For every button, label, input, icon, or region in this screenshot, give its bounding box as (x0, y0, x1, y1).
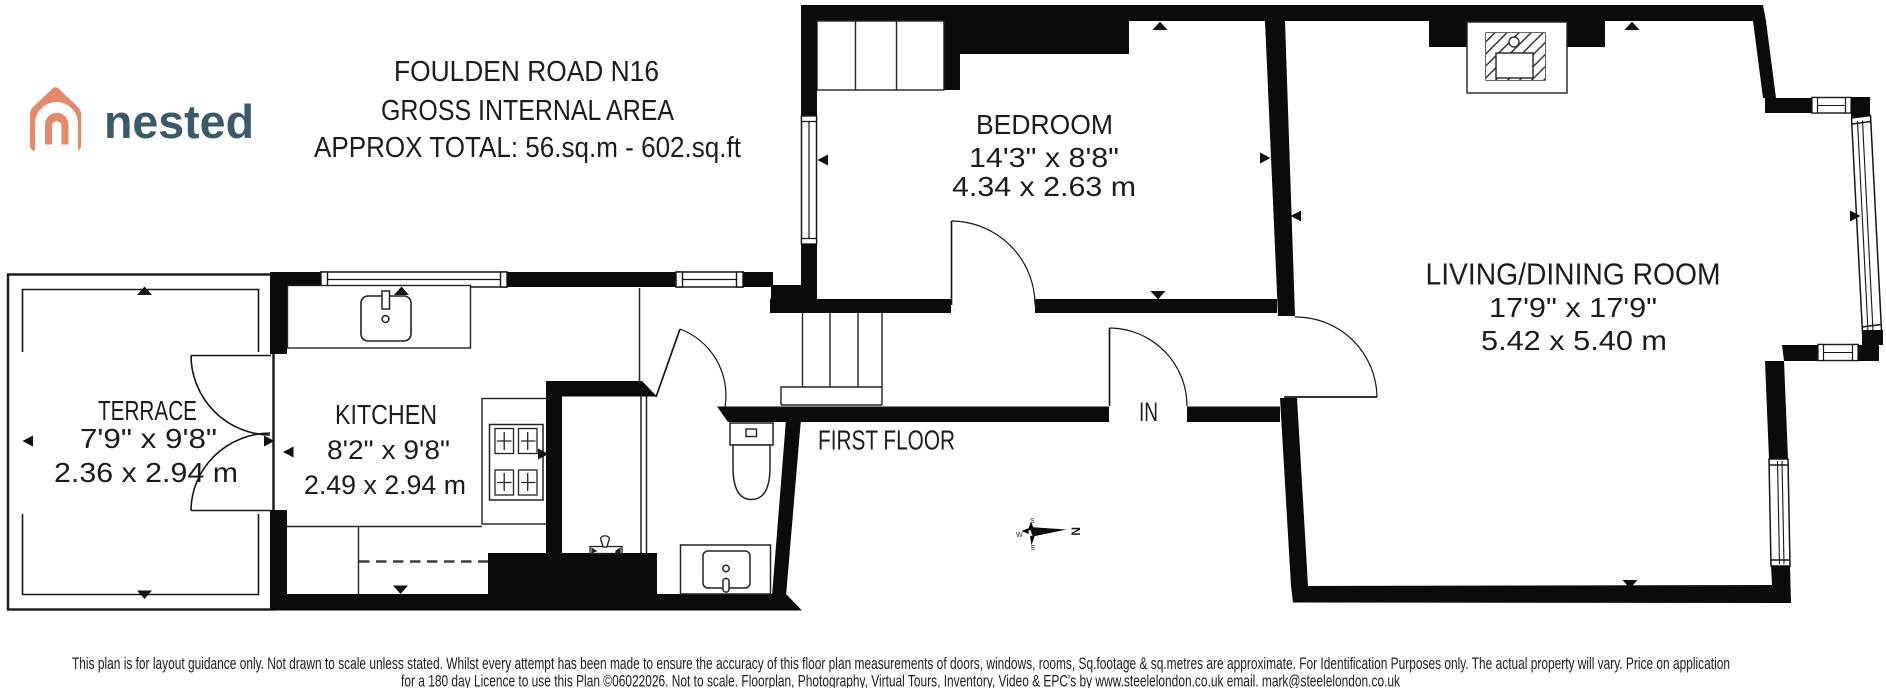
svg-text:FOULDEN ROAD N16: FOULDEN ROAD N16 (394, 56, 659, 88)
svg-text:BEDROOM: BEDROOM (976, 109, 1113, 140)
svg-text:nested: nested (104, 95, 254, 148)
svg-text:S: S (1030, 518, 1035, 525)
svg-text:E: E (1031, 545, 1036, 552)
svg-text:GROSS INTERNAL AREA: GROSS INTERNAL AREA (381, 95, 674, 127)
svg-text:7'9" x 9'8": 7'9" x 9'8" (80, 423, 217, 454)
svg-text:for a 180 day Licence to use t: for a 180 day Licence to use this Plan ©… (401, 673, 1401, 688)
svg-text:W: W (1016, 532, 1023, 539)
svg-text:N: N (1069, 527, 1083, 536)
svg-text:4.34 x 2.63 m: 4.34 x 2.63 m (952, 171, 1136, 202)
svg-text:17'9" x 17'9": 17'9" x 17'9" (1489, 292, 1657, 323)
svg-text:FIRST FLOOR: FIRST FLOOR (818, 425, 955, 456)
svg-text:This plan is for layout guidan: This plan is for layout guidance only. N… (72, 655, 1730, 673)
svg-text:2.36 x 2.94 m: 2.36 x 2.94 m (54, 457, 238, 488)
svg-text:LIVING/DINING ROOM: LIVING/DINING ROOM (1426, 257, 1721, 292)
svg-text:TERRACE: TERRACE (98, 395, 197, 426)
svg-text:APPROX TOTAL: 56.sq.m - 602.sq: APPROX TOTAL: 56.sq.m - 602.sq.ft (314, 132, 741, 164)
svg-text:5.42 x 5.40 m: 5.42 x 5.40 m (1481, 325, 1667, 356)
svg-text:8'2" x 9'8": 8'2" x 9'8" (327, 435, 450, 465)
svg-text:KITCHEN: KITCHEN (335, 399, 437, 430)
svg-text:2.49 x 2.94 m: 2.49 x 2.94 m (304, 470, 466, 500)
svg-text:IN: IN (1139, 397, 1158, 427)
svg-text:14'3" x 8'8": 14'3" x 8'8" (969, 142, 1119, 173)
